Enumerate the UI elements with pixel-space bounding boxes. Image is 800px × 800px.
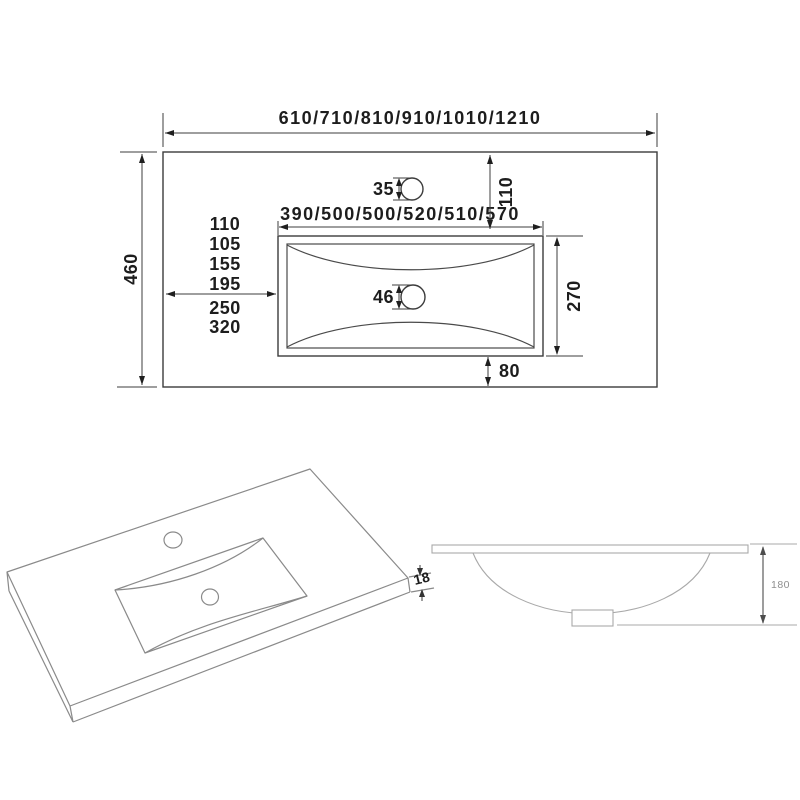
arrowhead bbox=[139, 376, 145, 385]
drain-hole-dimension: 46 bbox=[373, 285, 425, 309]
drain-fitting bbox=[572, 610, 613, 626]
basin-depth-dimension: 270 bbox=[546, 236, 584, 356]
thickness-dimension: 18 bbox=[409, 565, 434, 601]
bowl-profile bbox=[473, 553, 710, 614]
arrowhead bbox=[165, 130, 174, 136]
overall-width-dimension: 610/710/810/910/1010/1210 bbox=[163, 108, 657, 147]
basin-width-label: 390/500/500/520/510/570 bbox=[280, 204, 520, 224]
faucet-hole-iso bbox=[164, 532, 182, 548]
overall-depth-label: 460 bbox=[121, 253, 141, 285]
basin-rim-iso bbox=[115, 538, 307, 653]
arrowhead bbox=[166, 291, 175, 297]
offset-label: 195 bbox=[209, 274, 241, 294]
arrowhead bbox=[396, 178, 402, 186]
overall-depth-dimension: 460 bbox=[117, 152, 157, 387]
faucet-hole bbox=[401, 178, 423, 200]
front-margin-label: 80 bbox=[499, 361, 520, 381]
section-view: 180 bbox=[432, 544, 797, 626]
arrowhead bbox=[485, 357, 491, 366]
arrowhead bbox=[760, 615, 766, 624]
front-margin-dimension: 80 bbox=[485, 357, 520, 386]
arrowhead bbox=[485, 377, 491, 386]
offset-label: 105 bbox=[209, 234, 241, 254]
offset-label: 155 bbox=[209, 254, 241, 274]
faucet-hole-dimension: 35 bbox=[373, 178, 423, 200]
arrowhead bbox=[533, 224, 542, 230]
arrowhead bbox=[267, 291, 276, 297]
basin-outer-rim bbox=[278, 236, 543, 356]
thickness-edge bbox=[408, 578, 410, 592]
offset-label: 320 bbox=[209, 317, 241, 337]
technical-drawing-canvas: 610/710/810/910/1010/1210 460 390/500/50… bbox=[0, 0, 800, 800]
faucet-depth-label: 110 bbox=[496, 177, 516, 208]
basin-depth-label: 270 bbox=[564, 280, 584, 312]
arrowhead bbox=[487, 220, 493, 229]
arrowhead bbox=[396, 301, 402, 309]
basin-outline bbox=[278, 236, 543, 356]
arrowhead bbox=[554, 346, 560, 355]
bowl-height-dimension: 180 bbox=[760, 546, 790, 624]
arrowhead bbox=[279, 224, 288, 230]
drain-hole bbox=[401, 285, 425, 309]
thickness-label: 18 bbox=[412, 568, 432, 588]
arrowhead bbox=[554, 237, 560, 246]
drain-hole-iso bbox=[202, 589, 219, 605]
offset-label: 110 bbox=[210, 214, 241, 234]
drain-hole-label: 46 bbox=[373, 287, 394, 307]
countertop-section bbox=[432, 545, 748, 553]
isometric-view: 18 bbox=[7, 469, 434, 722]
arrowhead bbox=[396, 192, 402, 200]
arrowhead bbox=[139, 154, 145, 163]
basin-slope-curve-top bbox=[287, 245, 534, 270]
arrowhead bbox=[760, 546, 766, 555]
bowl-height-label: 180 bbox=[771, 579, 790, 591]
arrowhead bbox=[487, 155, 493, 164]
thickness-edge bbox=[73, 592, 410, 722]
faucet-hole-label: 35 bbox=[373, 179, 394, 199]
basin-width-dimension: 390/500/500/520/510/570 bbox=[278, 204, 543, 235]
arrowhead bbox=[646, 130, 655, 136]
offset-label: 250 bbox=[209, 298, 241, 318]
plan-view: 610/710/810/910/1010/1210 460 390/500/50… bbox=[117, 108, 657, 387]
arrowhead bbox=[396, 285, 402, 293]
thickness-edge bbox=[9, 591, 73, 722]
overall-width-label: 610/710/810/910/1010/1210 bbox=[279, 108, 542, 128]
basin-left-offset-dimension: 110 105 155 195 250 320 bbox=[166, 214, 276, 337]
basin-dimension-drawing: 610/710/810/910/1010/1210 460 390/500/50… bbox=[0, 0, 800, 800]
basin-slope-curve-bottom bbox=[287, 322, 534, 347]
